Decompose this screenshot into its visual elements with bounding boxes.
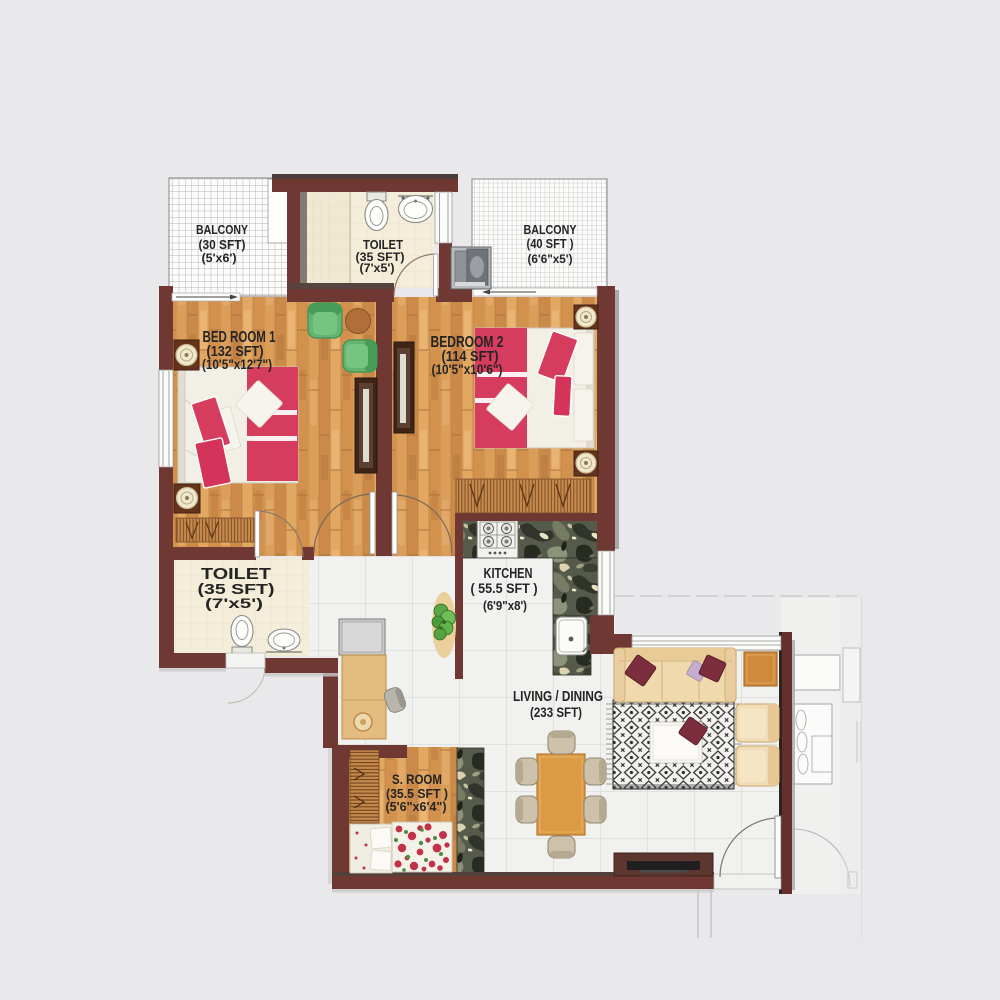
svg-text:(35 SFT): (35 SFT)	[356, 250, 405, 264]
svg-text:(7'x5'): (7'x5')	[360, 263, 395, 275]
svg-text:(6'9"x8'): (6'9"x8')	[483, 598, 527, 613]
svg-text:(6'6"x5'): (6'6"x5')	[528, 252, 573, 266]
svg-text:(10'5"x12'7"): (10'5"x12'7")	[202, 356, 272, 372]
svg-text:(5'6"x6'4"): (5'6"x6'4")	[386, 800, 447, 814]
svg-text:(10'5"x10'6"): (10'5"x10'6")	[432, 361, 503, 377]
svg-text:(5'x6'): (5'x6')	[202, 251, 237, 265]
svg-text:(233 SFT): (233 SFT)	[530, 705, 582, 720]
svg-text:(30 SFT): (30 SFT)	[199, 238, 246, 252]
svg-text:(35.5 SFT ): (35.5 SFT )	[386, 786, 448, 801]
svg-text:BALCONY: BALCONY	[196, 222, 248, 237]
svg-text:(7'x5'): (7'x5')	[205, 595, 263, 611]
svg-text:( 55.5 SFT ): ( 55.5 SFT )	[471, 580, 538, 596]
svg-text:BALCONY: BALCONY	[524, 222, 577, 237]
svg-text:LIVING / DINING: LIVING / DINING	[513, 689, 603, 705]
svg-text:(40 SFT ): (40 SFT )	[527, 237, 574, 251]
svg-text:S. ROOM: S. ROOM	[392, 771, 442, 787]
